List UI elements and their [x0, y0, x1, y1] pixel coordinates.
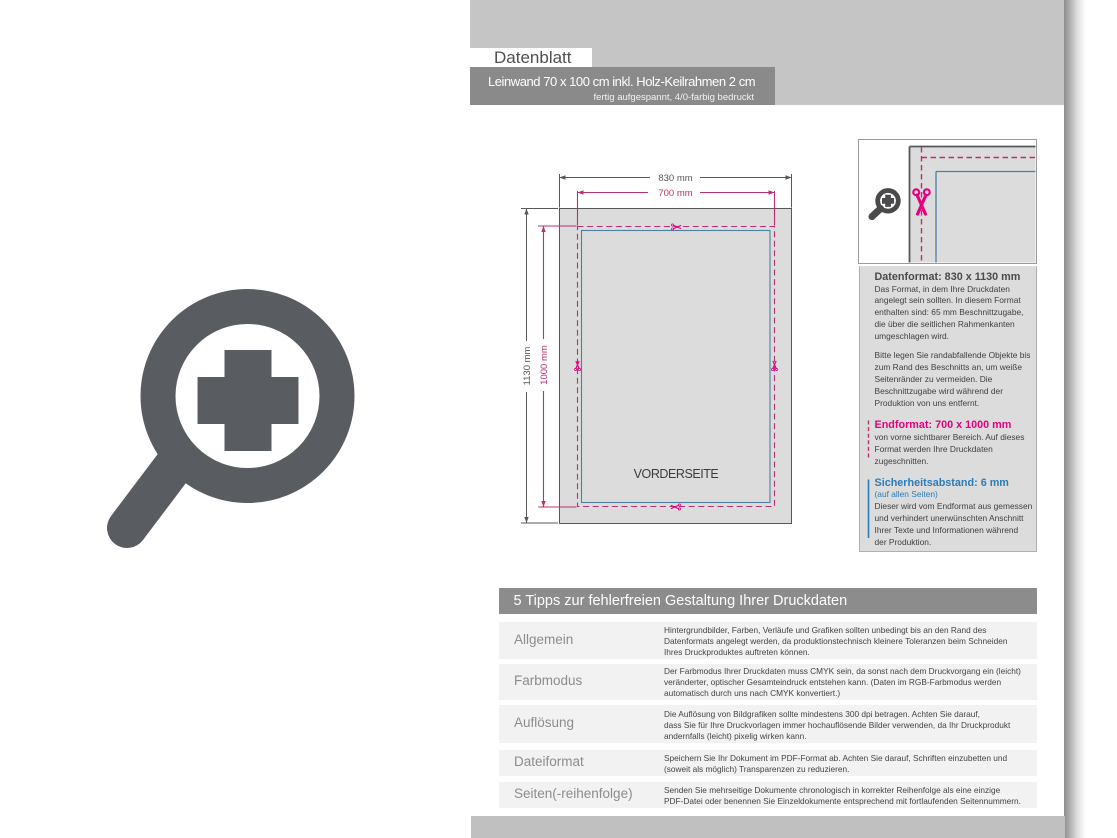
svg-text:1000 mm: 1000 mm [539, 345, 550, 385]
svg-text:830 mm: 830 mm [658, 173, 692, 184]
svg-text:1130 mm: 1130 mm [522, 346, 533, 385]
svg-text:700 mm: 700 mm [658, 188, 692, 199]
